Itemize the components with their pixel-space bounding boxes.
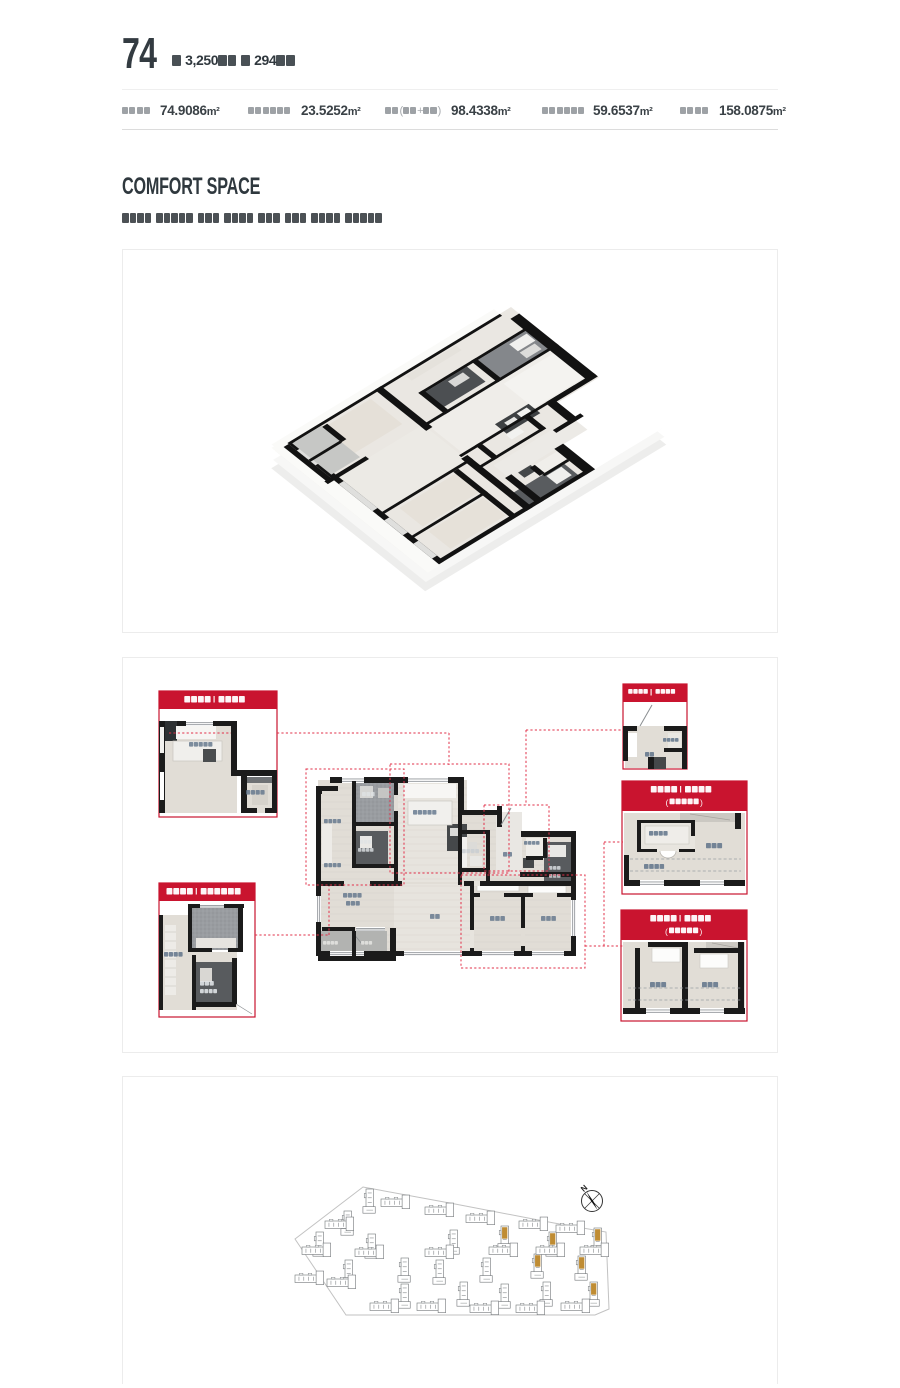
svg-text:): ) (700, 798, 703, 808)
svg-text:(: ( (665, 927, 668, 937)
svg-text:): ) (700, 927, 703, 937)
svg-text:N: N (579, 1183, 589, 1194)
svg-text:(: ( (666, 798, 669, 808)
